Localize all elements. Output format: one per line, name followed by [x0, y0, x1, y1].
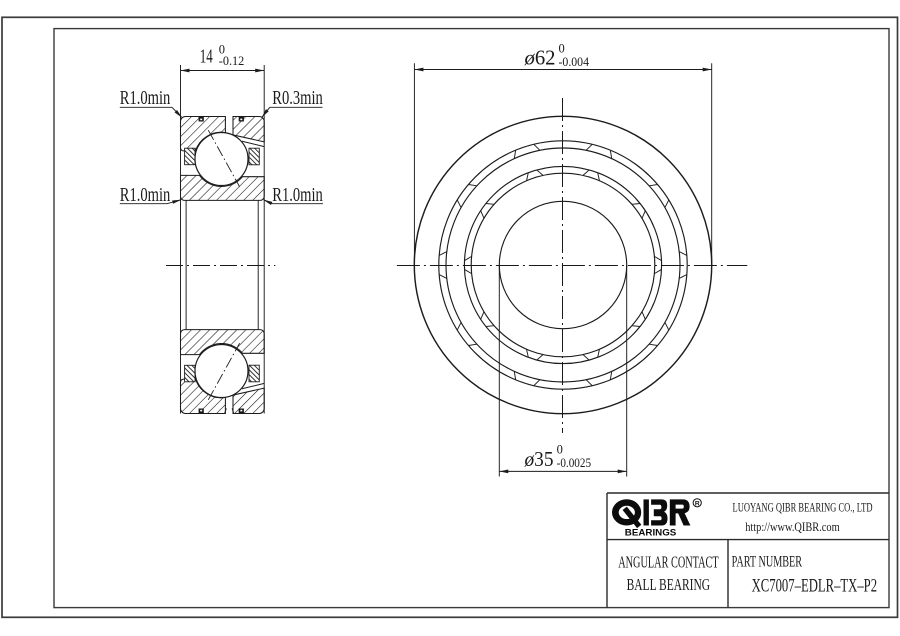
svg-text:R1.0min: R1.0min [120, 185, 171, 206]
svg-text:ANGULAR CONTACT: ANGULAR CONTACT [618, 552, 719, 571]
svg-text:LUOYANG QIBR BEARING CO., LTD: LUOYANG QIBR BEARING CO., LTD [733, 500, 873, 514]
svg-text:-0.004: -0.004 [559, 55, 590, 69]
svg-text:PART NUMBER: PART NUMBER [732, 554, 803, 571]
svg-text:14: 14 [200, 45, 213, 67]
svg-text:R: R [695, 500, 700, 507]
svg-text:R0.3min: R0.3min [272, 88, 323, 109]
svg-text:-0.0025: -0.0025 [557, 456, 592, 470]
svg-text:R1.0min: R1.0min [120, 88, 171, 109]
svg-text:0: 0 [557, 443, 563, 457]
svg-text:ø62: ø62 [524, 45, 556, 69]
svg-text:XC7007–EDLR–TX–P2: XC7007–EDLR–TX–P2 [752, 576, 878, 597]
svg-text:-0.12: -0.12 [219, 54, 245, 68]
svg-text:http://www.QIBR.com: http://www.QIBR.com [745, 520, 840, 534]
svg-text:BEARINGS: BEARINGS [625, 528, 677, 538]
svg-text:BALL BEARING: BALL BEARING [627, 575, 711, 594]
svg-text:R1.0min: R1.0min [272, 185, 323, 206]
svg-text:ø35: ø35 [524, 447, 554, 471]
svg-text:0: 0 [559, 42, 565, 56]
